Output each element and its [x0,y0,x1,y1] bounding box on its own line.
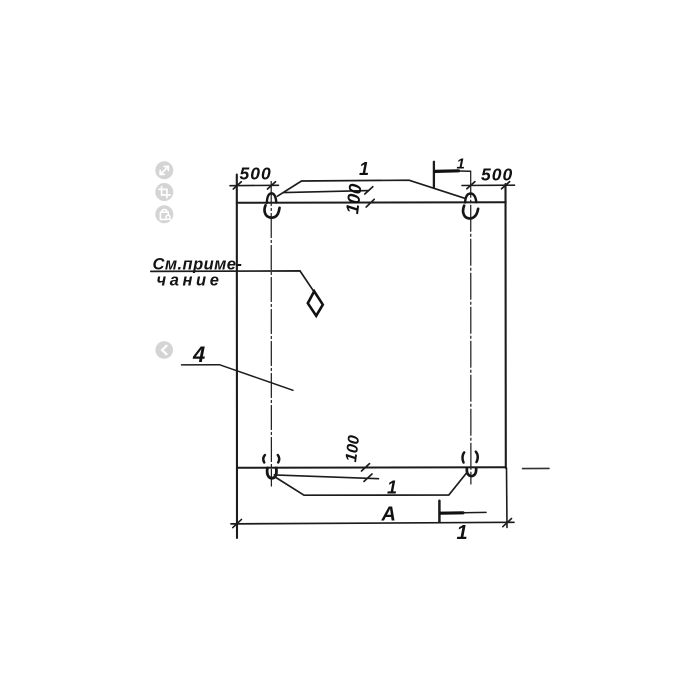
svg-text:4: 4 [192,342,205,367]
svg-text:500: 500 [481,165,513,185]
svg-text:А: А [381,504,396,526]
svg-text:1: 1 [457,522,468,544]
svg-text:100: 100 [343,434,363,463]
svg-text:1: 1 [359,159,369,179]
svg-text:1: 1 [457,156,465,173]
svg-text:1: 1 [387,478,397,498]
svg-text:500: 500 [240,164,272,184]
svg-text:100: 100 [342,183,366,215]
svg-text:чание: чание [157,272,223,290]
